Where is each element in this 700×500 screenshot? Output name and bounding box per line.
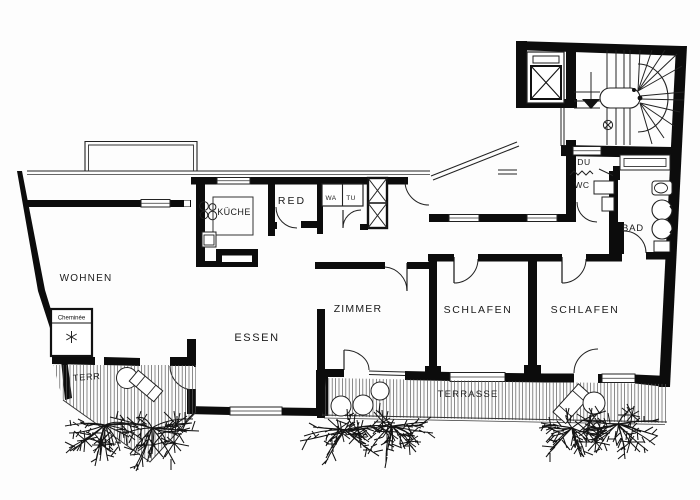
svg-text:SCHLAFEN: SCHLAFEN <box>444 304 513 316</box>
svg-text:TERR: TERR <box>73 371 101 383</box>
svg-text:ESSEN: ESSEN <box>234 332 279 344</box>
svg-text:WC: WC <box>574 180 589 190</box>
svg-text:WOHNEN: WOHNEN <box>60 273 113 284</box>
svg-text:WA: WA <box>325 195 336 202</box>
svg-text:DU: DU <box>577 157 590 167</box>
svg-text:Cheminée: Cheminée <box>58 316 86 322</box>
svg-text:SCHLAFEN: SCHLAFEN <box>551 304 620 316</box>
svg-text:RED: RED <box>278 195 306 207</box>
svg-text:ZIMMER: ZIMMER <box>334 303 383 315</box>
svg-text:TU: TU <box>346 195 355 202</box>
svg-text:TERRASSE: TERRASSE <box>438 389 499 400</box>
svg-text:KÜCHE: KÜCHE <box>217 207 251 217</box>
